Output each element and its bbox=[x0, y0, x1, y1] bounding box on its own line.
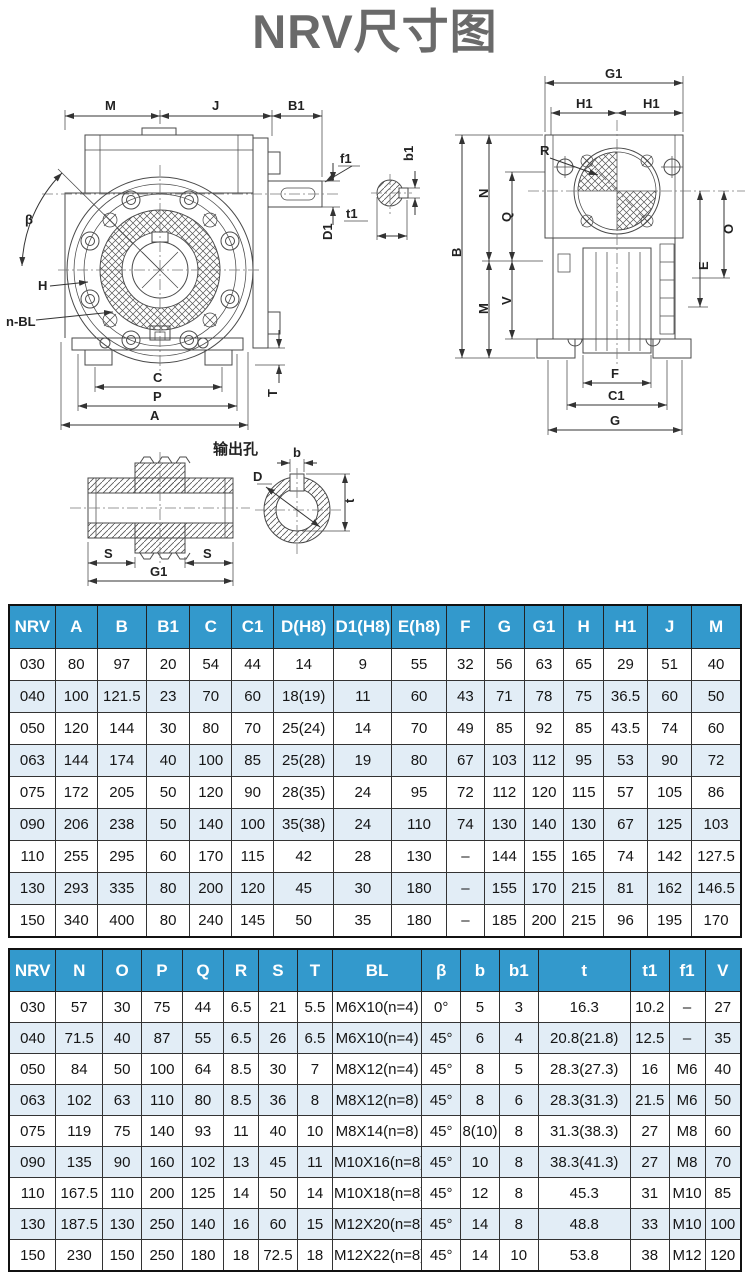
value-cell: 120 bbox=[705, 1240, 741, 1272]
model-cell: 063 bbox=[9, 745, 55, 777]
value-cell: 31 bbox=[630, 1178, 669, 1209]
value-cell: 28.3(27.3) bbox=[538, 1054, 630, 1085]
svg-text:D: D bbox=[253, 469, 262, 484]
value-cell: 10.2 bbox=[630, 992, 669, 1023]
value-cell: 125 bbox=[182, 1178, 223, 1209]
column-header: B1 bbox=[146, 605, 189, 649]
column-header: F bbox=[446, 605, 484, 649]
column-header: b bbox=[461, 949, 500, 992]
value-cell: 11 bbox=[334, 681, 392, 713]
table-row: 05012014430807025(24)14704985928543.5746… bbox=[9, 713, 741, 745]
value-cell: M6X10(n=4) bbox=[332, 992, 421, 1023]
value-cell: 53 bbox=[603, 745, 647, 777]
column-header: b1 bbox=[499, 949, 538, 992]
value-cell: 27 bbox=[630, 1116, 669, 1147]
value-cell: 110 bbox=[141, 1085, 182, 1116]
table-row: 06310263110808.5368M8X12(n=8)45°8628.3(3… bbox=[9, 1085, 741, 1116]
value-cell: 80 bbox=[392, 745, 446, 777]
svg-text:S: S bbox=[203, 546, 212, 561]
value-cell: M12 bbox=[669, 1240, 705, 1272]
table-row: 130187.5130250140166015M12X20(n=8)45°148… bbox=[9, 1209, 741, 1240]
value-cell: 80 bbox=[146, 873, 189, 905]
value-cell: 5 bbox=[499, 1054, 538, 1085]
value-cell: 103 bbox=[484, 745, 524, 777]
value-cell: 14 bbox=[223, 1178, 258, 1209]
svg-text:M: M bbox=[476, 303, 491, 314]
svg-text:C: C bbox=[153, 370, 163, 385]
value-cell: 250 bbox=[141, 1209, 182, 1240]
table-row: 0751197514093114010M8X14(n=8)45°8(10)831… bbox=[9, 1116, 741, 1147]
table-row: 0902062385014010035(38)24110741301401306… bbox=[9, 809, 741, 841]
value-cell: M6X10(n=4) bbox=[332, 1023, 421, 1054]
value-cell: 70 bbox=[232, 713, 274, 745]
value-cell: 238 bbox=[97, 809, 146, 841]
model-cell: 050 bbox=[9, 713, 55, 745]
value-cell: 144 bbox=[484, 841, 524, 873]
value-cell: 24 bbox=[334, 777, 392, 809]
column-header: D1(H8) bbox=[334, 605, 392, 649]
value-cell: 71.5 bbox=[56, 1023, 103, 1054]
value-cell: 75 bbox=[141, 992, 182, 1023]
value-cell: 144 bbox=[55, 745, 97, 777]
table-row: 09013590160102134511M10X16(n=8)45°10838.… bbox=[9, 1147, 741, 1178]
column-header: P bbox=[141, 949, 182, 992]
svg-text:H1: H1 bbox=[643, 96, 660, 111]
value-cell: 70 bbox=[190, 681, 232, 713]
value-cell: 160 bbox=[141, 1147, 182, 1178]
value-cell: 67 bbox=[603, 809, 647, 841]
column-header: β bbox=[422, 949, 461, 992]
value-cell: 57 bbox=[56, 992, 103, 1023]
value-cell: 110 bbox=[392, 809, 446, 841]
value-cell: 86 bbox=[692, 777, 741, 809]
value-cell: M12X20(n=8) bbox=[332, 1209, 421, 1240]
value-cell: 78 bbox=[524, 681, 564, 713]
value-cell: 21.5 bbox=[630, 1085, 669, 1116]
output-hole-view: 输出孔 S S G1 bbox=[70, 440, 258, 586]
value-cell: 16 bbox=[630, 1054, 669, 1085]
column-header: J bbox=[648, 605, 692, 649]
value-cell: M10 bbox=[669, 1209, 705, 1240]
value-cell: 215 bbox=[564, 905, 604, 938]
value-cell: 80 bbox=[55, 649, 97, 681]
value-cell: M8 bbox=[669, 1116, 705, 1147]
value-cell: 32 bbox=[446, 649, 484, 681]
value-cell: 121.5 bbox=[97, 681, 146, 713]
value-cell: 335 bbox=[97, 873, 146, 905]
value-cell: 102 bbox=[56, 1085, 103, 1116]
value-cell: 36 bbox=[259, 1085, 298, 1116]
value-cell: 64 bbox=[182, 1054, 223, 1085]
column-header: A bbox=[55, 605, 97, 649]
value-cell: 19 bbox=[334, 745, 392, 777]
value-cell: 55 bbox=[182, 1023, 223, 1054]
value-cell: 60 bbox=[259, 1209, 298, 1240]
value-cell: 85 bbox=[705, 1178, 741, 1209]
value-cell: M10 bbox=[669, 1178, 705, 1209]
value-cell: 40 bbox=[259, 1116, 298, 1147]
value-cell: 6.5 bbox=[297, 1023, 332, 1054]
value-cell: 28.3(31.3) bbox=[538, 1085, 630, 1116]
value-cell: 74 bbox=[603, 841, 647, 873]
header-row: NRVNOPQRSTBLβbb1tt1f1V bbox=[9, 949, 741, 992]
value-cell: 185 bbox=[484, 905, 524, 938]
value-cell: 255 bbox=[55, 841, 97, 873]
value-cell: 70 bbox=[392, 713, 446, 745]
value-cell: 28 bbox=[334, 841, 392, 873]
value-cell: 250 bbox=[141, 1240, 182, 1272]
model-cell: 150 bbox=[9, 1240, 56, 1272]
value-cell: 45° bbox=[422, 1054, 461, 1085]
value-cell: 81 bbox=[603, 873, 647, 905]
value-cell: 90 bbox=[648, 745, 692, 777]
svg-text:J: J bbox=[212, 98, 219, 113]
value-cell: 180 bbox=[392, 873, 446, 905]
value-cell: 72.5 bbox=[259, 1240, 298, 1272]
value-cell: 18 bbox=[223, 1240, 258, 1272]
value-cell: 50 bbox=[146, 777, 189, 809]
svg-text:E: E bbox=[696, 261, 711, 270]
column-header: BL bbox=[332, 949, 421, 992]
value-cell: 97 bbox=[97, 649, 146, 681]
value-cell: 8 bbox=[297, 1085, 332, 1116]
value-cell: 29 bbox=[603, 649, 647, 681]
value-cell: 45° bbox=[422, 1085, 461, 1116]
value-cell: 140 bbox=[524, 809, 564, 841]
value-cell: 11 bbox=[223, 1116, 258, 1147]
value-cell: 35 bbox=[705, 1023, 741, 1054]
value-cell: M8X12(n=4) bbox=[332, 1054, 421, 1085]
value-cell: 120 bbox=[190, 777, 232, 809]
value-cell: 144 bbox=[97, 713, 146, 745]
svg-text:b1: b1 bbox=[401, 146, 416, 161]
column-header: t1 bbox=[630, 949, 669, 992]
value-cell: 120 bbox=[55, 713, 97, 745]
value-cell: 38.3(41.3) bbox=[538, 1147, 630, 1178]
column-header: H1 bbox=[603, 605, 647, 649]
value-cell: 14 bbox=[461, 1240, 500, 1272]
value-cell: 70 bbox=[705, 1147, 741, 1178]
value-cell: 85 bbox=[232, 745, 274, 777]
value-cell: 100 bbox=[232, 809, 274, 841]
value-cell: 8 bbox=[499, 1147, 538, 1178]
value-cell: – bbox=[446, 873, 484, 905]
value-cell: 12 bbox=[461, 1178, 500, 1209]
value-cell: 60 bbox=[232, 681, 274, 713]
value-cell: 40 bbox=[146, 745, 189, 777]
value-cell: M6 bbox=[669, 1054, 705, 1085]
value-cell: 165 bbox=[564, 841, 604, 873]
value-cell: 28(35) bbox=[274, 777, 334, 809]
value-cell: 63 bbox=[103, 1085, 142, 1116]
value-cell: 24 bbox=[334, 809, 392, 841]
value-cell: 200 bbox=[524, 905, 564, 938]
value-cell: 95 bbox=[564, 745, 604, 777]
svg-text:n-BL: n-BL bbox=[6, 314, 36, 329]
value-cell: 8 bbox=[499, 1116, 538, 1147]
column-header: t bbox=[538, 949, 630, 992]
value-cell: 30 bbox=[259, 1054, 298, 1085]
value-cell: 60 bbox=[705, 1116, 741, 1147]
model-cell: 150 bbox=[9, 905, 55, 938]
value-cell: 6 bbox=[461, 1023, 500, 1054]
column-header: C bbox=[190, 605, 232, 649]
table-row: 110255295601701154228130–144155165741421… bbox=[9, 841, 741, 873]
value-cell: 105 bbox=[648, 777, 692, 809]
column-header: B bbox=[97, 605, 146, 649]
value-cell: – bbox=[446, 841, 484, 873]
value-cell: 45° bbox=[422, 1147, 461, 1178]
value-cell: 27 bbox=[630, 1147, 669, 1178]
value-cell: 85 bbox=[564, 713, 604, 745]
value-cell: 174 bbox=[97, 745, 146, 777]
value-cell: 57 bbox=[603, 777, 647, 809]
value-cell: 55 bbox=[392, 649, 446, 681]
value-cell: 44 bbox=[232, 649, 274, 681]
column-header: NRV bbox=[9, 949, 56, 992]
value-cell: 340 bbox=[55, 905, 97, 938]
svg-text:t1: t1 bbox=[346, 206, 358, 221]
svg-text:A: A bbox=[150, 408, 160, 423]
value-cell: 120 bbox=[232, 873, 274, 905]
value-cell: 110 bbox=[103, 1178, 142, 1209]
value-cell: 20 bbox=[146, 649, 189, 681]
model-cell: 090 bbox=[9, 809, 55, 841]
column-header: M bbox=[692, 605, 741, 649]
value-cell: 90 bbox=[103, 1147, 142, 1178]
value-cell: 51 bbox=[648, 649, 692, 681]
value-cell: 293 bbox=[55, 873, 97, 905]
front-view bbox=[42, 128, 338, 375]
value-cell: 40 bbox=[103, 1023, 142, 1054]
value-cell: 35 bbox=[334, 905, 392, 938]
value-cell: 16.3 bbox=[538, 992, 630, 1023]
value-cell: 120 bbox=[524, 777, 564, 809]
value-cell: 93 bbox=[182, 1116, 223, 1147]
value-cell: 38 bbox=[630, 1240, 669, 1272]
value-cell: 20.8(21.8) bbox=[538, 1023, 630, 1054]
value-cell: 172 bbox=[55, 777, 97, 809]
value-cell: 16 bbox=[223, 1209, 258, 1240]
value-cell: 14 bbox=[274, 649, 334, 681]
table-row: 150340400802401455035180–185200215961951… bbox=[9, 905, 741, 938]
value-cell: 230 bbox=[56, 1240, 103, 1272]
table-row: 110167.5110200125145014M10X18(n=8)45°128… bbox=[9, 1178, 741, 1209]
value-cell: 50 bbox=[692, 681, 741, 713]
value-cell: 8 bbox=[499, 1209, 538, 1240]
value-cell: M8X12(n=8) bbox=[332, 1085, 421, 1116]
svg-text:M: M bbox=[105, 98, 116, 113]
table-row: 030573075446.5215.5M6X10(n=4)0°5316.310.… bbox=[9, 992, 741, 1023]
value-cell: 115 bbox=[232, 841, 274, 873]
value-cell: 31.3(38.3) bbox=[538, 1116, 630, 1147]
value-cell: 130 bbox=[484, 809, 524, 841]
value-cell: 8 bbox=[461, 1054, 500, 1085]
svg-text:N: N bbox=[476, 189, 491, 198]
value-cell: 23 bbox=[146, 681, 189, 713]
value-cell: 35(38) bbox=[274, 809, 334, 841]
value-cell: 7 bbox=[297, 1054, 332, 1085]
value-cell: M8 bbox=[669, 1147, 705, 1178]
svg-text:b: b bbox=[293, 445, 301, 460]
value-cell: 30 bbox=[103, 992, 142, 1023]
value-cell: 180 bbox=[182, 1240, 223, 1272]
column-header: G bbox=[484, 605, 524, 649]
column-header: N bbox=[56, 949, 103, 992]
value-cell: 100 bbox=[705, 1209, 741, 1240]
svg-text:f1: f1 bbox=[340, 151, 352, 166]
value-cell: 3 bbox=[499, 992, 538, 1023]
value-cell: 45° bbox=[422, 1209, 461, 1240]
model-cell: 050 bbox=[9, 1054, 56, 1085]
value-cell: 10 bbox=[499, 1240, 538, 1272]
value-cell: 13 bbox=[223, 1147, 258, 1178]
value-cell: 167.5 bbox=[56, 1178, 103, 1209]
value-cell: 14 bbox=[461, 1209, 500, 1240]
value-cell: 56 bbox=[484, 649, 524, 681]
column-header: V bbox=[705, 949, 741, 992]
value-cell: 6.5 bbox=[223, 992, 258, 1023]
svg-text:B: B bbox=[449, 248, 464, 257]
value-cell: 87 bbox=[141, 1023, 182, 1054]
value-cell: 145 bbox=[232, 905, 274, 938]
value-cell: 5.5 bbox=[297, 992, 332, 1023]
value-cell: 170 bbox=[692, 905, 741, 938]
value-cell: 170 bbox=[190, 841, 232, 873]
value-cell: 100 bbox=[141, 1054, 182, 1085]
table-row: 04071.54087556.5266.5M6X10(n=4)45°6420.8… bbox=[9, 1023, 741, 1054]
value-cell: 30 bbox=[334, 873, 392, 905]
value-cell: 195 bbox=[648, 905, 692, 938]
svg-text:P: P bbox=[153, 389, 162, 404]
column-header: T bbox=[297, 949, 332, 992]
column-header: O bbox=[103, 949, 142, 992]
value-cell: 80 bbox=[190, 713, 232, 745]
value-cell: 205 bbox=[97, 777, 146, 809]
value-cell: 96 bbox=[603, 905, 647, 938]
value-cell: 215 bbox=[564, 873, 604, 905]
value-cell: 5 bbox=[461, 992, 500, 1023]
value-cell: 200 bbox=[141, 1178, 182, 1209]
value-cell: 8.5 bbox=[223, 1054, 258, 1085]
value-cell: 112 bbox=[484, 777, 524, 809]
svg-text:C1: C1 bbox=[608, 388, 625, 403]
model-cell: 063 bbox=[9, 1085, 56, 1116]
header-row: NRVABB1CC1D(H8)D1(H8)E(h8)FGG1HH1JM bbox=[9, 605, 741, 649]
column-header: R bbox=[223, 949, 258, 992]
value-cell: 130 bbox=[103, 1209, 142, 1240]
svg-text:H1: H1 bbox=[576, 96, 593, 111]
value-cell: 75 bbox=[103, 1116, 142, 1147]
dimensions-table-2: NRVNOPQRSTBLβbb1tt1f1V030573075446.5215.… bbox=[8, 948, 742, 1272]
value-cell: 50 bbox=[259, 1178, 298, 1209]
value-cell: 4 bbox=[499, 1023, 538, 1054]
value-cell: 112 bbox=[524, 745, 564, 777]
svg-text:O: O bbox=[721, 224, 736, 234]
model-cell: 040 bbox=[9, 681, 55, 713]
model-cell: 030 bbox=[9, 992, 56, 1023]
value-cell: 15 bbox=[297, 1209, 332, 1240]
svg-text:β: β bbox=[25, 212, 33, 227]
value-cell: 45 bbox=[259, 1147, 298, 1178]
svg-text:Q: Q bbox=[499, 212, 514, 222]
value-cell: 63 bbox=[524, 649, 564, 681]
column-header: C1 bbox=[232, 605, 274, 649]
value-cell: 45.3 bbox=[538, 1178, 630, 1209]
column-header: D(H8) bbox=[274, 605, 334, 649]
value-cell: 146.5 bbox=[692, 873, 741, 905]
value-cell: 9 bbox=[334, 649, 392, 681]
value-cell: 25(24) bbox=[274, 713, 334, 745]
value-cell: M8X14(n=8) bbox=[332, 1116, 421, 1147]
dimensions-table-1: NRVABB1CC1D(H8)D1(H8)E(h8)FGG1HH1JM03080… bbox=[8, 604, 742, 938]
value-cell: 130 bbox=[392, 841, 446, 873]
value-cell: 40 bbox=[705, 1054, 741, 1085]
value-cell: 45° bbox=[422, 1023, 461, 1054]
value-cell: 10 bbox=[297, 1116, 332, 1147]
value-cell: 60 bbox=[648, 681, 692, 713]
svg-text:F: F bbox=[611, 366, 619, 381]
value-cell: 11 bbox=[297, 1147, 332, 1178]
value-cell: 0° bbox=[422, 992, 461, 1023]
column-header: f1 bbox=[669, 949, 705, 992]
model-cell: 075 bbox=[9, 777, 55, 809]
value-cell: 140 bbox=[182, 1209, 223, 1240]
value-cell: 206 bbox=[55, 809, 97, 841]
value-cell: 67 bbox=[446, 745, 484, 777]
model-cell: 090 bbox=[9, 1147, 56, 1178]
value-cell: 200 bbox=[190, 873, 232, 905]
value-cell: 125 bbox=[648, 809, 692, 841]
value-cell: 48.8 bbox=[538, 1209, 630, 1240]
column-header: Q bbox=[182, 949, 223, 992]
value-cell: 150 bbox=[103, 1240, 142, 1272]
value-cell: 84 bbox=[56, 1054, 103, 1085]
value-cell: M12X22(n=8) bbox=[332, 1240, 421, 1272]
value-cell: 43 bbox=[446, 681, 484, 713]
column-header: G1 bbox=[524, 605, 564, 649]
value-cell: 14 bbox=[297, 1178, 332, 1209]
value-cell: 6.5 bbox=[223, 1023, 258, 1054]
value-cell: 26 bbox=[259, 1023, 298, 1054]
value-cell: 53.8 bbox=[538, 1240, 630, 1272]
value-cell: 127.5 bbox=[692, 841, 741, 873]
svg-text:G: G bbox=[610, 413, 620, 428]
svg-text:H: H bbox=[38, 278, 47, 293]
value-cell: 95 bbox=[392, 777, 446, 809]
value-cell: 27 bbox=[705, 992, 741, 1023]
table-row: 075172205501209028(35)249572112120115571… bbox=[9, 777, 741, 809]
value-cell: 90 bbox=[232, 777, 274, 809]
model-cell: 130 bbox=[9, 1209, 56, 1240]
value-cell: 155 bbox=[484, 873, 524, 905]
table-row: 03080972054441495532566365295140 bbox=[9, 649, 741, 681]
svg-text:T: T bbox=[265, 389, 280, 397]
value-cell: 21 bbox=[259, 992, 298, 1023]
value-cell: 102 bbox=[182, 1147, 223, 1178]
svg-text:输出孔: 输出孔 bbox=[213, 440, 258, 458]
table-row: 040100121.523706018(19)11604371787536.56… bbox=[9, 681, 741, 713]
value-cell: 60 bbox=[146, 841, 189, 873]
column-header: E(h8) bbox=[392, 605, 446, 649]
value-cell: 8(10) bbox=[461, 1116, 500, 1147]
value-cell: 6 bbox=[499, 1085, 538, 1116]
svg-text:B1: B1 bbox=[288, 98, 305, 113]
value-cell: 240 bbox=[190, 905, 232, 938]
value-cell: 187.5 bbox=[56, 1209, 103, 1240]
column-header: S bbox=[259, 949, 298, 992]
value-cell: 18 bbox=[297, 1240, 332, 1272]
